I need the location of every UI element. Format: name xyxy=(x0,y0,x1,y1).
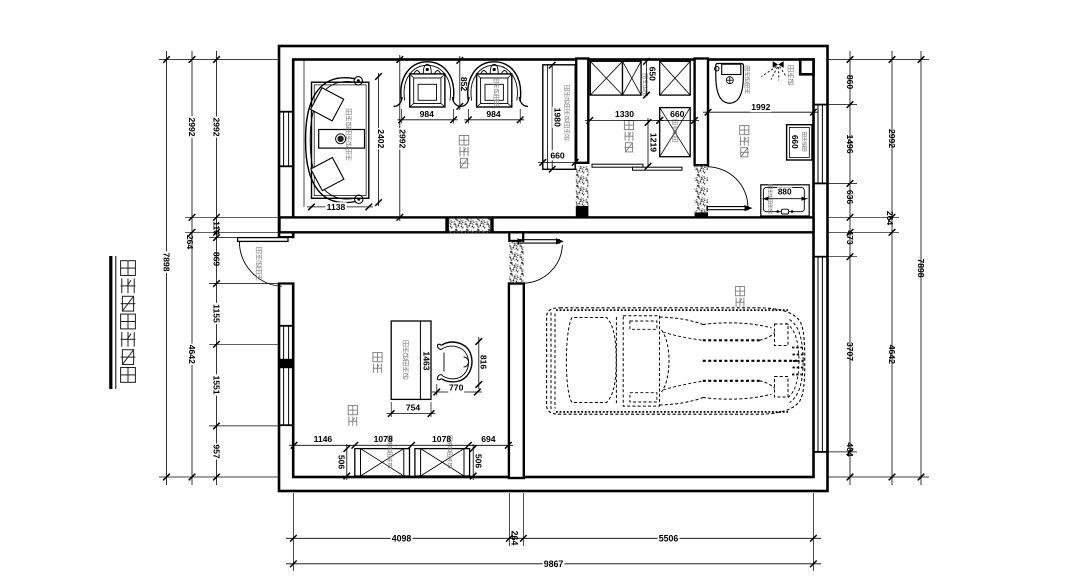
svg-text:770: 770 xyxy=(449,383,464,393)
svg-text:7898: 7898 xyxy=(916,258,926,277)
svg-text:264: 264 xyxy=(185,235,195,250)
svg-text:2992: 2992 xyxy=(212,117,222,136)
svg-text:754: 754 xyxy=(406,403,421,413)
svg-text:957: 957 xyxy=(212,444,222,459)
svg-text:984: 984 xyxy=(420,109,435,119)
svg-text:1138: 1138 xyxy=(327,202,346,212)
svg-text:1463: 1463 xyxy=(421,351,431,370)
svg-text:264: 264 xyxy=(510,531,520,546)
svg-text:660: 660 xyxy=(670,109,685,119)
svg-text:110: 110 xyxy=(212,221,222,235)
svg-text:7898: 7898 xyxy=(162,252,172,271)
svg-text:506: 506 xyxy=(473,454,483,469)
svg-text:1155: 1155 xyxy=(212,304,222,323)
svg-text:5506: 5506 xyxy=(659,533,679,543)
svg-text:1078: 1078 xyxy=(374,434,393,444)
svg-text:1219: 1219 xyxy=(648,133,658,152)
svg-text:1551: 1551 xyxy=(212,375,222,394)
svg-text:650: 650 xyxy=(647,67,657,82)
svg-text:473: 473 xyxy=(845,230,855,245)
svg-text:4642: 4642 xyxy=(187,345,197,364)
svg-text:1146: 1146 xyxy=(314,434,333,444)
svg-text:816: 816 xyxy=(479,355,489,370)
svg-text:2402: 2402 xyxy=(376,129,386,148)
svg-text:1330: 1330 xyxy=(615,109,634,119)
svg-text:636: 636 xyxy=(845,190,855,205)
svg-text:264: 264 xyxy=(885,211,895,226)
svg-text:4098: 4098 xyxy=(392,533,412,543)
svg-text:506: 506 xyxy=(337,455,347,470)
svg-text:880: 880 xyxy=(778,188,792,197)
svg-text:2992: 2992 xyxy=(187,117,197,136)
svg-text:9867: 9867 xyxy=(544,559,564,569)
svg-text:1992: 1992 xyxy=(751,102,770,112)
svg-text:869: 869 xyxy=(212,252,222,267)
svg-text:464: 464 xyxy=(845,442,855,457)
svg-text:4642: 4642 xyxy=(887,345,897,364)
svg-text:2992: 2992 xyxy=(887,129,897,148)
svg-text:3707: 3707 xyxy=(845,342,855,361)
svg-text:1496: 1496 xyxy=(845,134,855,153)
svg-text:852: 852 xyxy=(459,77,469,92)
svg-text:860: 860 xyxy=(845,75,855,90)
svg-text:694: 694 xyxy=(481,434,496,444)
svg-text:2992: 2992 xyxy=(397,129,407,148)
svg-text:660: 660 xyxy=(790,135,799,149)
svg-text:1078: 1078 xyxy=(432,434,451,444)
svg-text:660: 660 xyxy=(550,150,565,160)
svg-text:1980: 1980 xyxy=(553,108,563,127)
svg-text:984: 984 xyxy=(486,109,501,119)
